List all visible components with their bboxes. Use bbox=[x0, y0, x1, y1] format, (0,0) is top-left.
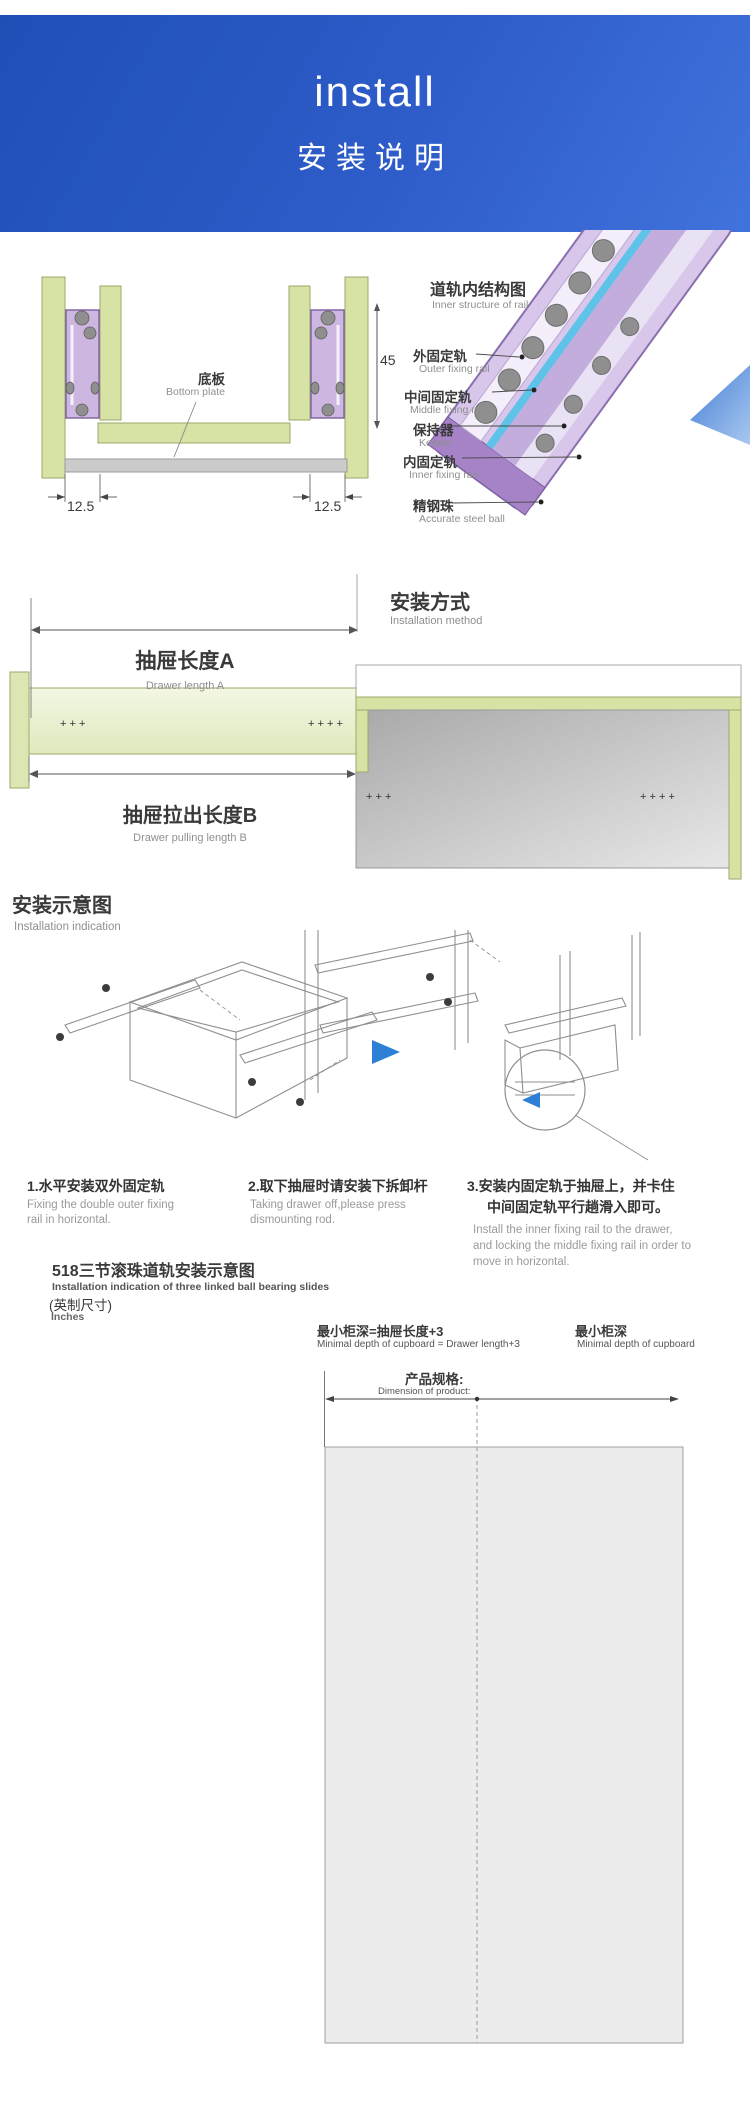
min-depth-formula-cn: 最小柜深=抽屉长度+3 bbox=[317, 1321, 443, 1340]
label-inner-fixing-rail-cn: 内固定轨 bbox=[403, 451, 457, 471]
min-depth-cn: 最小柜深 bbox=[575, 1321, 627, 1340]
bottom-plate-label-en: Bottom plate bbox=[166, 386, 225, 398]
step3-title-line1: 3.安装内固定轨于抽屉上，并卡住 bbox=[467, 1176, 675, 1196]
svg-text:+ + +: + + + bbox=[60, 718, 85, 730]
page: install 安装说明 bbox=[0, 0, 750, 2118]
label-middle-fixing-rail-en: Middle fixing rail bbox=[410, 404, 485, 416]
chart-unit-en: Inches bbox=[51, 1311, 84, 1323]
header-title-en: install bbox=[0, 68, 750, 116]
inner-structure-title-en: Inner structure of rail bbox=[432, 299, 528, 311]
label-keeper-cn: 保持器 bbox=[413, 419, 454, 439]
indication-title-en: Installation indication bbox=[14, 921, 121, 933]
step2-text-line2: dismounting rod. bbox=[250, 1214, 335, 1226]
length-b-label-cn: 抽屉拉出长度B bbox=[100, 799, 280, 828]
dim-12-5-right: 12.5 bbox=[314, 498, 341, 514]
indication-title-cn: 安装示意图 bbox=[12, 889, 112, 918]
step1-text-line1: Fixing the double outer fixing bbox=[27, 1199, 174, 1211]
svg-text:+ + + +: + + + + bbox=[308, 718, 343, 730]
size-chart-drawing bbox=[0, 1340, 750, 2118]
label-inner-fixing-rail-en: Inner fixing rail bbox=[409, 469, 477, 481]
method-title-cn: 安装方式 bbox=[390, 586, 470, 615]
magnifier-blue-arrow-icon bbox=[522, 1092, 540, 1108]
step3-title-line2: 中间固定轨平行趟滑入即可。 bbox=[487, 1197, 669, 1217]
length-b-label-en: Drawer pulling length B bbox=[100, 832, 280, 844]
label-steel-ball-cn: 精钢珠 bbox=[413, 495, 454, 515]
label-keeper-en: Keeper bbox=[419, 437, 453, 449]
step1-text-line2: rail in horizontal. bbox=[27, 1214, 111, 1226]
step3-text-line2: and locking the middle fixing rail in or… bbox=[473, 1240, 691, 1252]
step2-text-line1: Taking drawer off,please press bbox=[250, 1199, 406, 1211]
svg-text:+ + + +: + + + + bbox=[640, 791, 675, 803]
inner-structure-title-cn: 道轨内结构图 bbox=[430, 276, 526, 300]
header-title-cn: 安装说明 bbox=[0, 133, 750, 177]
bottom-plate-label-cn: 底板 bbox=[198, 368, 225, 388]
cupboard-area bbox=[325, 1447, 683, 2043]
length-a-label-en: Drawer length A bbox=[100, 680, 270, 692]
blue-arrow-icon bbox=[372, 1040, 400, 1064]
header-banner: install 安装说明 bbox=[0, 15, 750, 232]
step3-text-line1: Install the inner fixing rail to the dra… bbox=[473, 1224, 672, 1236]
step2-title: 2.取下抽屉时请安装下拆卸杆 bbox=[248, 1176, 428, 1196]
step1-title: 1.水平安装双外固定轨 bbox=[27, 1176, 165, 1196]
installation-method-drawing: + + ++ + + + + + ++ + + + bbox=[0, 560, 750, 905]
step3-text-line3: move in horizontal. bbox=[473, 1256, 570, 1268]
chart-title-cn: 518三节滚珠道轨安装示意图 bbox=[52, 1257, 255, 1281]
method-title-en: Installation method bbox=[390, 615, 482, 627]
label-steel-ball-en: Accurate steel ball bbox=[419, 513, 505, 525]
chart-title-en: Installation indication of three linked … bbox=[52, 1281, 329, 1293]
svg-text:+ + +: + + + bbox=[366, 791, 391, 803]
dim-12-5-left: 12.5 bbox=[67, 498, 94, 514]
label-middle-fixing-rail-cn: 中间固定轨 bbox=[404, 386, 472, 406]
length-a-label-cn: 抽屉长度A bbox=[100, 645, 270, 675]
rail-cross-section-drawing bbox=[0, 230, 750, 560]
label-outer-fixing-rail-cn: 外固定轨 bbox=[413, 345, 467, 365]
installation-indication-drawing bbox=[0, 930, 750, 1180]
dim-45: 45 bbox=[380, 352, 396, 368]
label-outer-fixing-rail-en: Outer fixing rail bbox=[419, 363, 490, 375]
